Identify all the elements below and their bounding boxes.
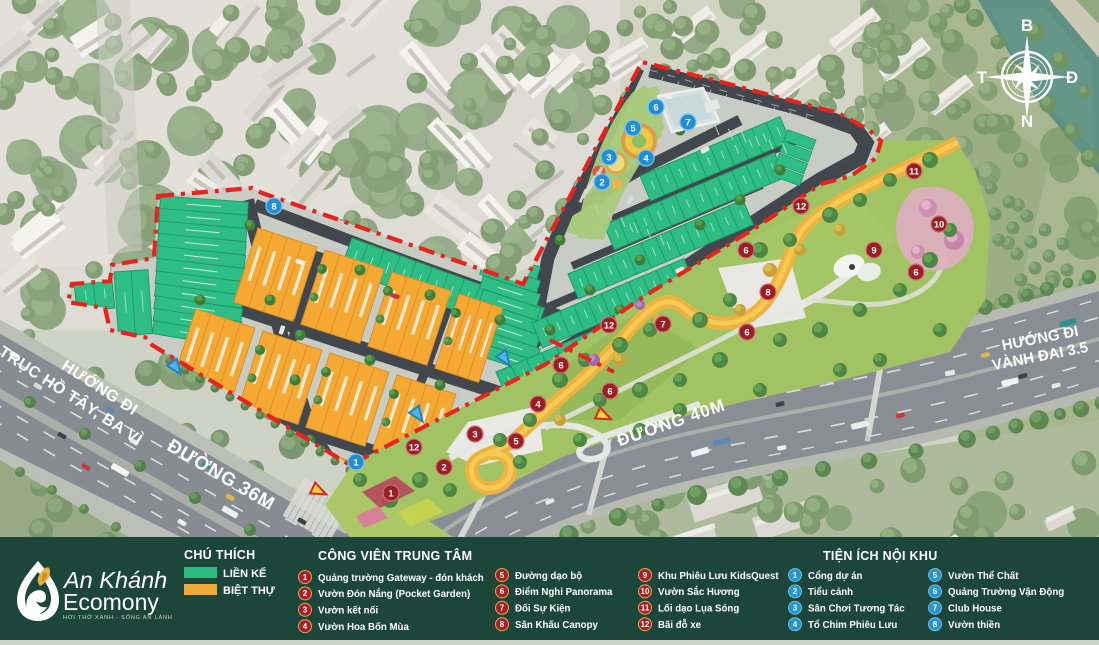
svg-text:Vườn Đón Nắng (Pocket Garden): Vườn Đón Nắng (Pocket Garden) — [318, 588, 470, 600]
svg-text:Vườn kết nối: Vườn kết nối — [318, 606, 378, 617]
svg-text:Đường dạo bộ: Đường dạo bộ — [515, 571, 582, 582]
svg-text:3: 3 — [303, 606, 308, 615]
svg-text:4: 4 — [535, 399, 541, 410]
svg-text:4: 4 — [643, 153, 649, 164]
svg-text:HƠI THỞ XANH - SỐNG AN LÀNH: HƠI THỞ XANH - SỐNG AN LÀNH — [63, 614, 173, 621]
svg-text:Lối dạo Lụa Sóng: Lối dạo Lụa Sóng — [658, 604, 739, 615]
svg-text:Vườn Sắc Hương: Vườn Sắc Hương — [658, 586, 740, 598]
svg-text:12: 12 — [796, 201, 807, 212]
svg-text:LIỀN KẾ: LIỀN KẾ — [223, 567, 266, 580]
svg-text:Đ: Đ — [1066, 68, 1078, 87]
svg-text:10: 10 — [934, 219, 945, 230]
svg-text:3: 3 — [793, 604, 798, 613]
svg-text:Vườn Thể Chất: Vườn Thể Chất — [948, 571, 1019, 582]
svg-text:3: 3 — [472, 429, 477, 440]
svg-text:6: 6 — [744, 327, 749, 338]
svg-text:12: 12 — [641, 620, 650, 629]
svg-text:BIỆT THỰ: BIỆT THỰ — [223, 584, 276, 597]
svg-text:Vườn Hoa Bốn Mùa: Vườn Hoa Bốn Mùa — [318, 622, 409, 633]
svg-text:Bãi đỗ xe: Bãi đỗ xe — [658, 620, 702, 631]
svg-text:6: 6 — [558, 360, 563, 371]
svg-text:Quảng trường Gateway - đón khá: Quảng trường Gateway - đón khách — [318, 573, 484, 584]
svg-text:5: 5 — [500, 571, 505, 580]
svg-text:8: 8 — [765, 287, 770, 298]
svg-text:11: 11 — [641, 604, 650, 613]
svg-text:2: 2 — [793, 587, 798, 596]
svg-text:Đối Sự Kiện: Đối Sự Kiện — [515, 604, 571, 615]
svg-text:6: 6 — [607, 386, 612, 397]
svg-text:4: 4 — [303, 622, 308, 631]
svg-text:Quảng Trường Vận Động: Quảng Trường Vận Động — [948, 587, 1064, 598]
svg-text:9: 9 — [871, 245, 876, 256]
svg-text:CÔNG VIÊN TRUNG TÂM: CÔNG VIÊN TRUNG TÂM — [318, 548, 472, 563]
svg-text:Điểm Nghỉ Panorama: Điểm Nghỉ Panorama — [515, 587, 613, 598]
svg-text:B: B — [1021, 16, 1033, 35]
svg-text:5: 5 — [933, 571, 938, 580]
svg-text:7: 7 — [500, 604, 505, 613]
svg-text:9: 9 — [643, 571, 648, 580]
svg-text:6: 6 — [653, 102, 658, 113]
svg-text:7: 7 — [933, 604, 938, 613]
svg-text:8: 8 — [271, 201, 276, 212]
svg-text:Sân Khấu Canopy: Sân Khấu Canopy — [515, 620, 599, 631]
svg-text:Cổng dự án: Cổng dự án — [808, 571, 862, 582]
svg-text:1: 1 — [303, 573, 308, 582]
svg-text:2: 2 — [441, 462, 446, 473]
svg-text:11: 11 — [909, 166, 920, 177]
svg-text:7: 7 — [660, 319, 665, 330]
svg-text:2: 2 — [303, 589, 308, 598]
svg-text:TIỆN ÍCH NỘI KHU: TIỆN ÍCH NỘI KHU — [823, 548, 938, 563]
svg-text:2: 2 — [599, 177, 604, 188]
svg-text:N: N — [1021, 112, 1033, 131]
svg-text:6: 6 — [743, 245, 748, 256]
svg-text:5: 5 — [630, 123, 636, 134]
svg-text:Tổ Chim Phiêu Lưu: Tổ Chim Phiêu Lưu — [808, 620, 897, 631]
svg-text:12: 12 — [409, 442, 420, 453]
svg-text:6: 6 — [913, 267, 918, 278]
svg-text:1: 1 — [793, 571, 798, 580]
svg-text:6: 6 — [933, 587, 938, 596]
svg-text:3: 3 — [606, 152, 611, 163]
svg-text:10: 10 — [641, 587, 650, 596]
svg-text:CHÚ THÍCH: CHÚ THÍCH — [184, 547, 255, 562]
svg-text:8: 8 — [933, 620, 938, 629]
svg-text:Khu Phiêu Lưu KidsQuest: Khu Phiêu Lưu KidsQuest — [658, 571, 779, 582]
svg-text:Ecomony: Ecomony — [63, 589, 159, 615]
svg-text:1: 1 — [388, 488, 394, 499]
svg-text:8: 8 — [500, 620, 505, 629]
svg-text:T: T — [977, 68, 988, 87]
svg-text:1: 1 — [353, 457, 359, 468]
svg-text:4: 4 — [793, 620, 798, 629]
svg-text:Sân Chơi Tương Tác: Sân Chơi Tương Tác — [808, 604, 905, 615]
svg-text:12: 12 — [604, 320, 615, 331]
svg-text:Vườn thiền: Vườn thiền — [948, 620, 1000, 631]
svg-text:5: 5 — [513, 436, 519, 447]
svg-text:7: 7 — [685, 117, 690, 128]
svg-text:6: 6 — [500, 587, 505, 596]
svg-text:Club House: Club House — [948, 604, 1002, 615]
svg-text:Tiểu cảnh: Tiểu cảnh — [808, 587, 853, 598]
